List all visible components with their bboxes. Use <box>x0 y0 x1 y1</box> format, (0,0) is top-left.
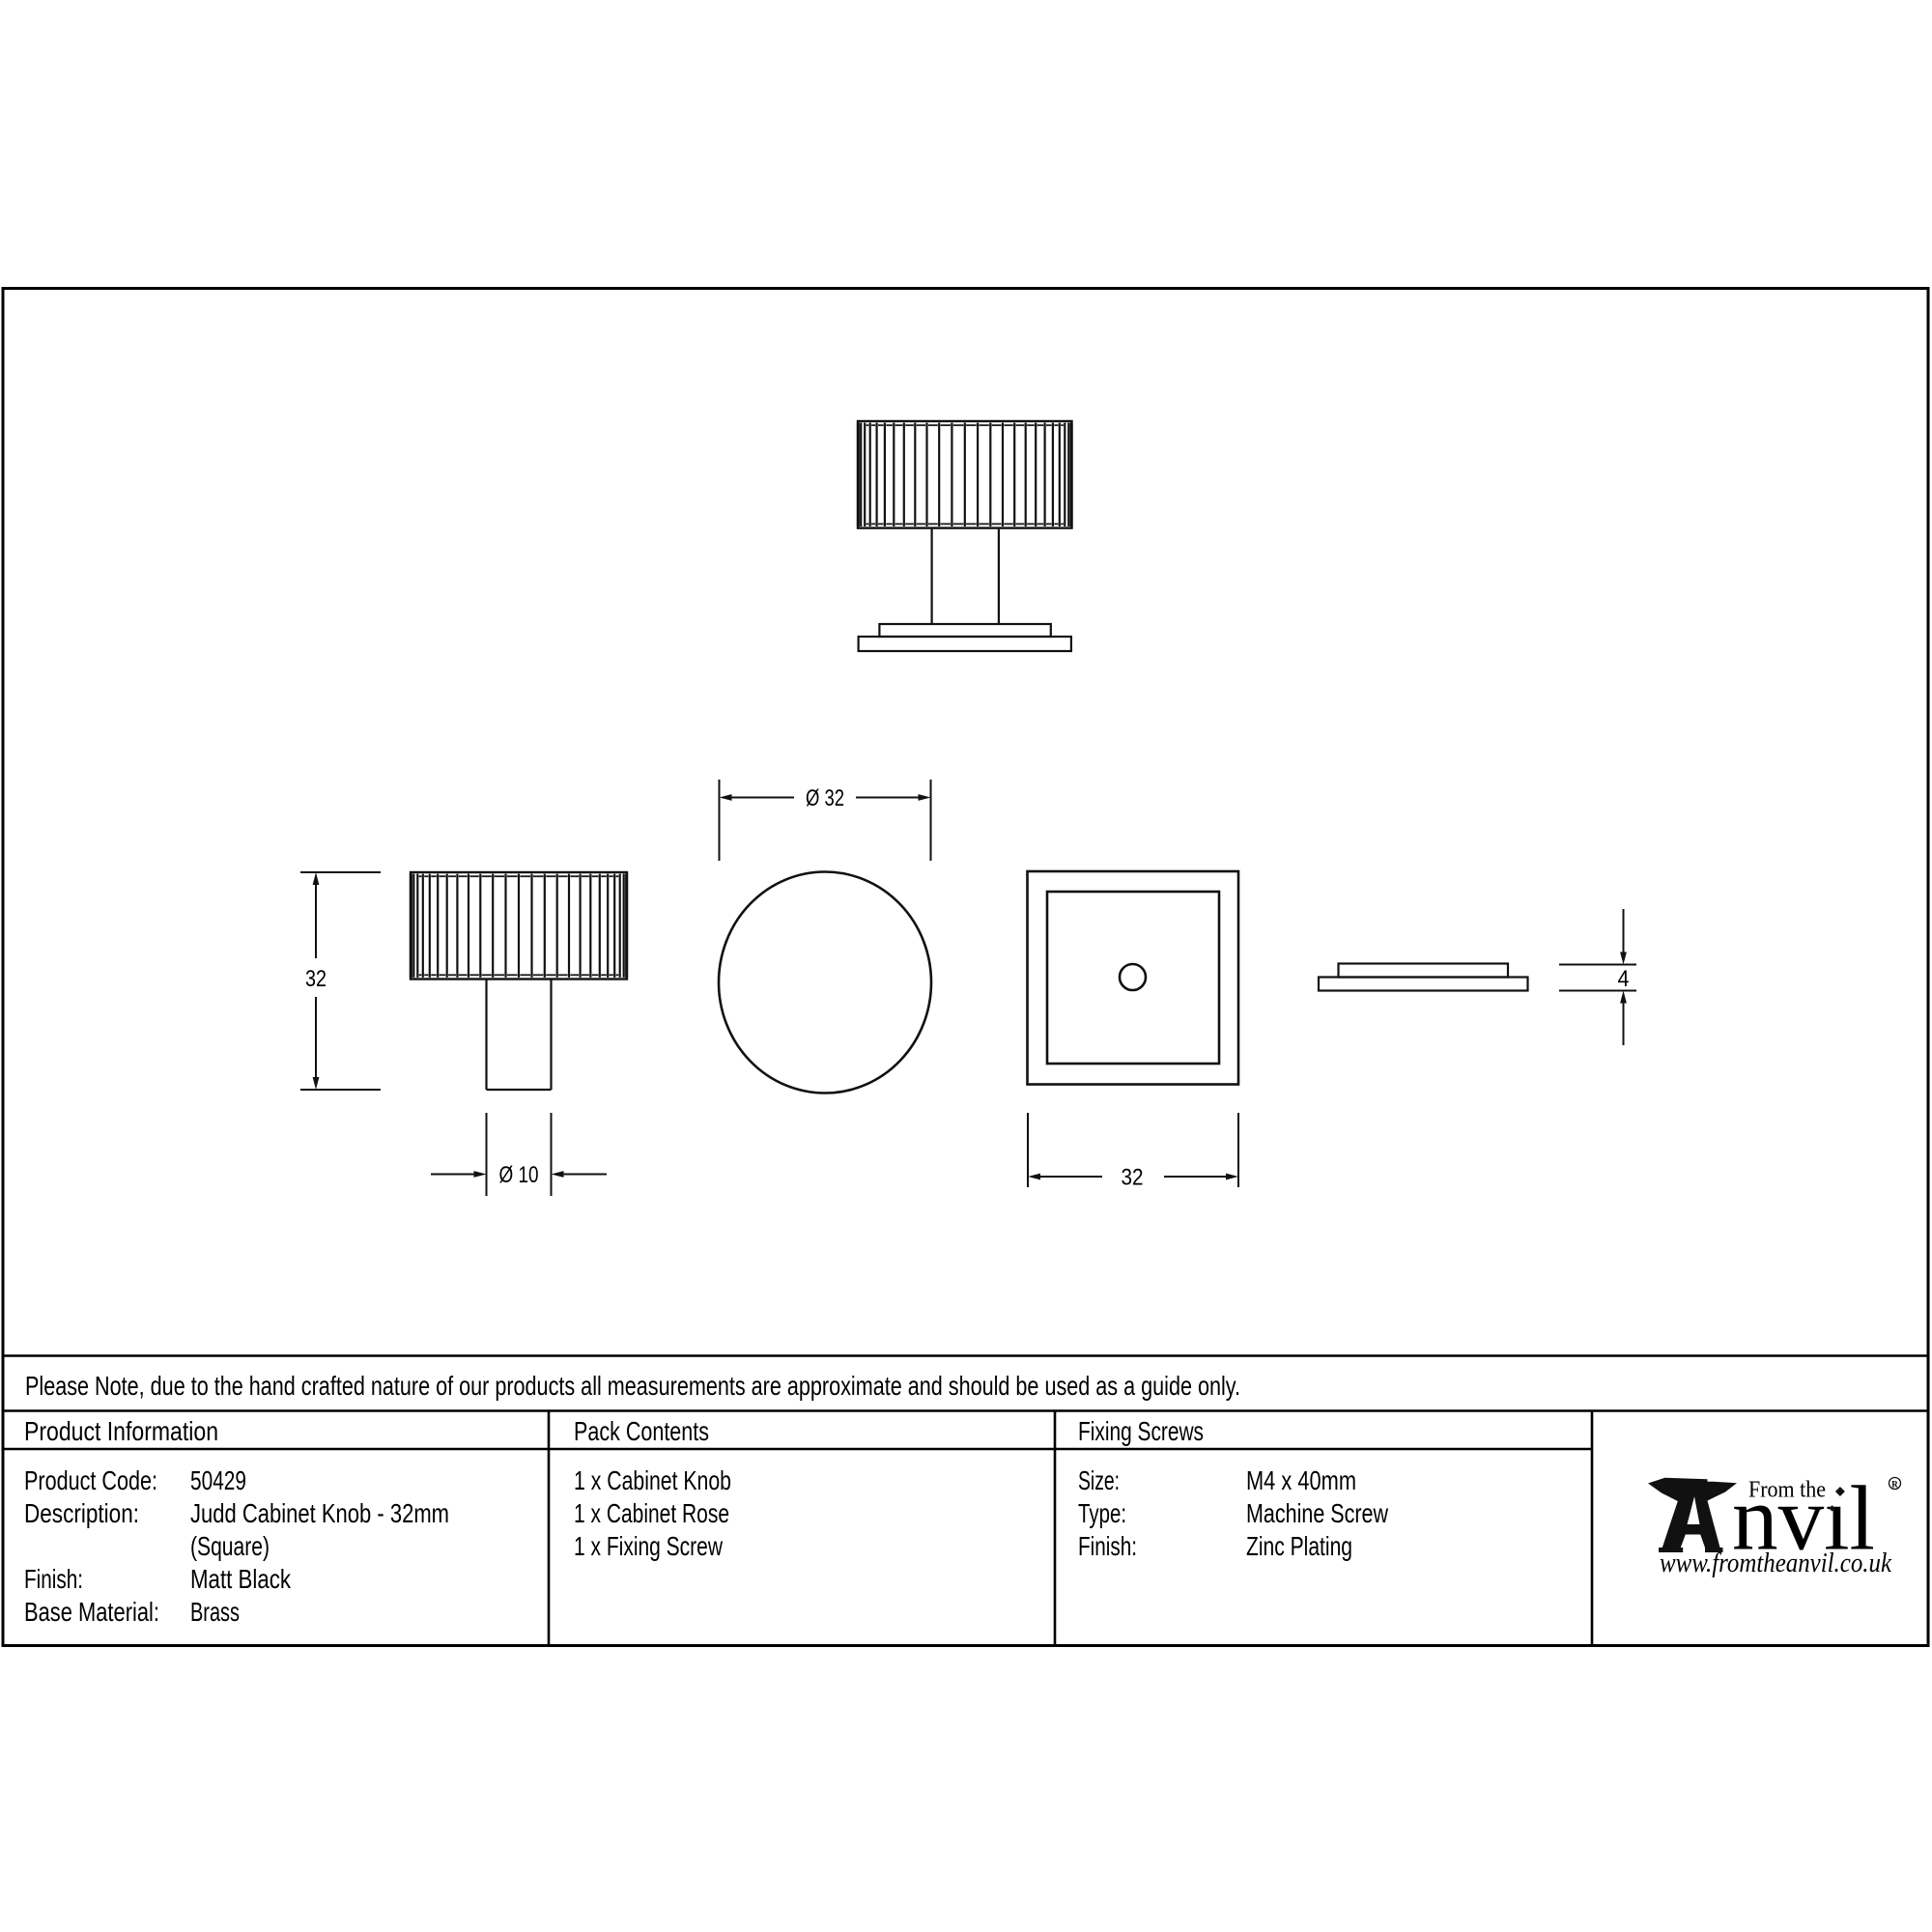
svg-text:Size:: Size: <box>1078 1465 1120 1495</box>
svg-text:www.fromtheanvil.co.uk: www.fromtheanvil.co.uk <box>1660 1548 1892 1578</box>
svg-text:32: 32 <box>305 966 327 992</box>
svg-text:Please Note, due to the hand c: Please Note, due to the hand crafted nat… <box>25 1371 1240 1401</box>
svg-text:Finish:: Finish: <box>24 1564 83 1594</box>
svg-text:50429: 50429 <box>190 1465 246 1495</box>
svg-text:Product Code:: Product Code: <box>24 1465 157 1495</box>
svg-text:Description:: Description: <box>24 1498 139 1528</box>
svg-text:Product Information: Product Information <box>24 1416 218 1446</box>
svg-text:Machine Screw: Machine Screw <box>1246 1498 1389 1528</box>
svg-text:1 x Cabinet Rose: 1 x Cabinet Rose <box>574 1498 729 1528</box>
svg-text:M4 x 40mm: M4 x 40mm <box>1246 1465 1356 1495</box>
svg-text:Base Material:: Base Material: <box>24 1597 159 1627</box>
svg-text:1 x Cabinet Knob: 1 x Cabinet Knob <box>574 1465 731 1495</box>
svg-text:Ø 32: Ø 32 <box>806 785 844 811</box>
svg-text:(Square): (Square) <box>190 1531 270 1561</box>
svg-text:Judd Cabinet Knob - 32mm: Judd Cabinet Knob - 32mm <box>190 1498 449 1528</box>
svg-text:Type:: Type: <box>1078 1498 1126 1528</box>
svg-text:Matt Black: Matt Black <box>190 1564 292 1594</box>
svg-text:Pack Contents: Pack Contents <box>574 1416 709 1446</box>
svg-text:Brass: Brass <box>190 1597 240 1627</box>
svg-text:32: 32 <box>1122 1165 1144 1191</box>
svg-text:Finish:: Finish: <box>1078 1531 1137 1561</box>
svg-text:1 x Fixing Screw: 1 x Fixing Screw <box>574 1531 724 1561</box>
svg-text:4: 4 <box>1618 966 1630 992</box>
svg-text:Zinc Plating: Zinc Plating <box>1246 1531 1352 1561</box>
svg-text:R: R <box>1891 1480 1898 1490</box>
svg-text:Fixing Screws: Fixing Screws <box>1078 1416 1204 1446</box>
svg-text:Ø 10: Ø 10 <box>499 1162 539 1188</box>
